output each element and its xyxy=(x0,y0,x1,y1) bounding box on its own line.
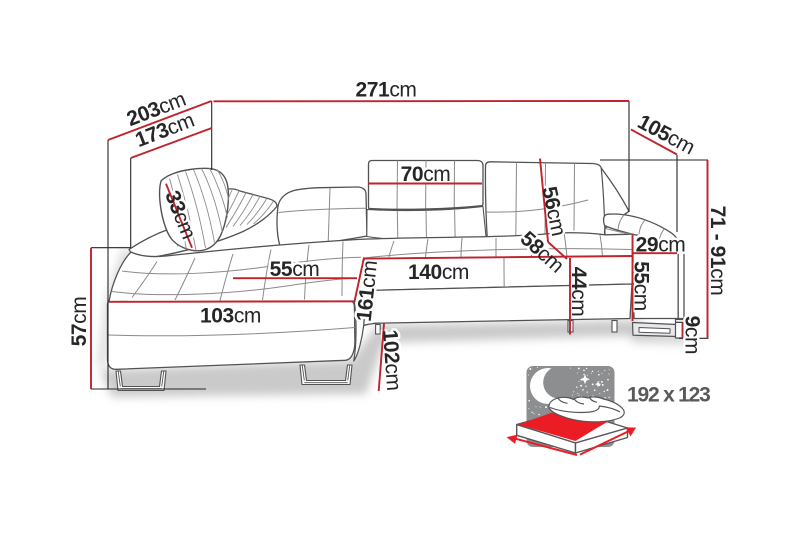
svg-text:29cm: 29cm xyxy=(636,234,686,257)
svg-text:102cm: 102cm xyxy=(378,329,405,392)
svg-text:70cm: 70cm xyxy=(401,163,451,186)
svg-text:271cm: 271cm xyxy=(355,78,416,101)
svg-text:9cm: 9cm xyxy=(680,316,703,354)
svg-text:103cm: 103cm xyxy=(200,305,261,328)
svg-text:140cm: 140cm xyxy=(408,261,469,284)
svg-text:71 - 91cm: 71 - 91cm xyxy=(706,206,729,296)
svg-text:44cm: 44cm xyxy=(567,267,590,317)
svg-text:57cm: 57cm xyxy=(68,297,91,347)
svg-text:55cm: 55cm xyxy=(630,261,653,311)
svg-text:55cm: 55cm xyxy=(270,258,320,281)
svg-text:192 x 123: 192 x 123 xyxy=(627,384,710,407)
